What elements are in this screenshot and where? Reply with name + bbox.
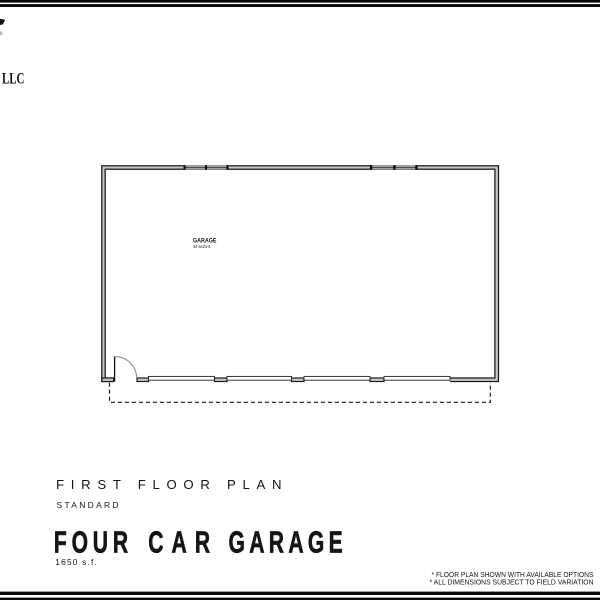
svg-text:* FLOOR PLAN SHOWN WITH AVAILA: * FLOOR PLAN SHOWN WITH AVAILABLE OPTION… <box>432 572 594 579</box>
svg-text:CAR: CAR <box>148 525 210 560</box>
svg-text:STANDARD: STANDARD <box>57 500 119 510</box>
svg-text:* ALL DIMENSIONS SUBJECT TO FI: * ALL DIMENSIONS SUBJECT TO FIELD VARIAT… <box>430 579 594 586</box>
svg-text:LLC: LLC <box>2 71 24 88</box>
svg-text:34-6x24-6: 34-6x24-6 <box>193 244 211 249</box>
svg-text:FIRST FLOOR PLAN: FIRST FLOOR PLAN <box>56 477 282 492</box>
svg-text:1650 s.f.: 1650 s.f. <box>55 557 97 567</box>
